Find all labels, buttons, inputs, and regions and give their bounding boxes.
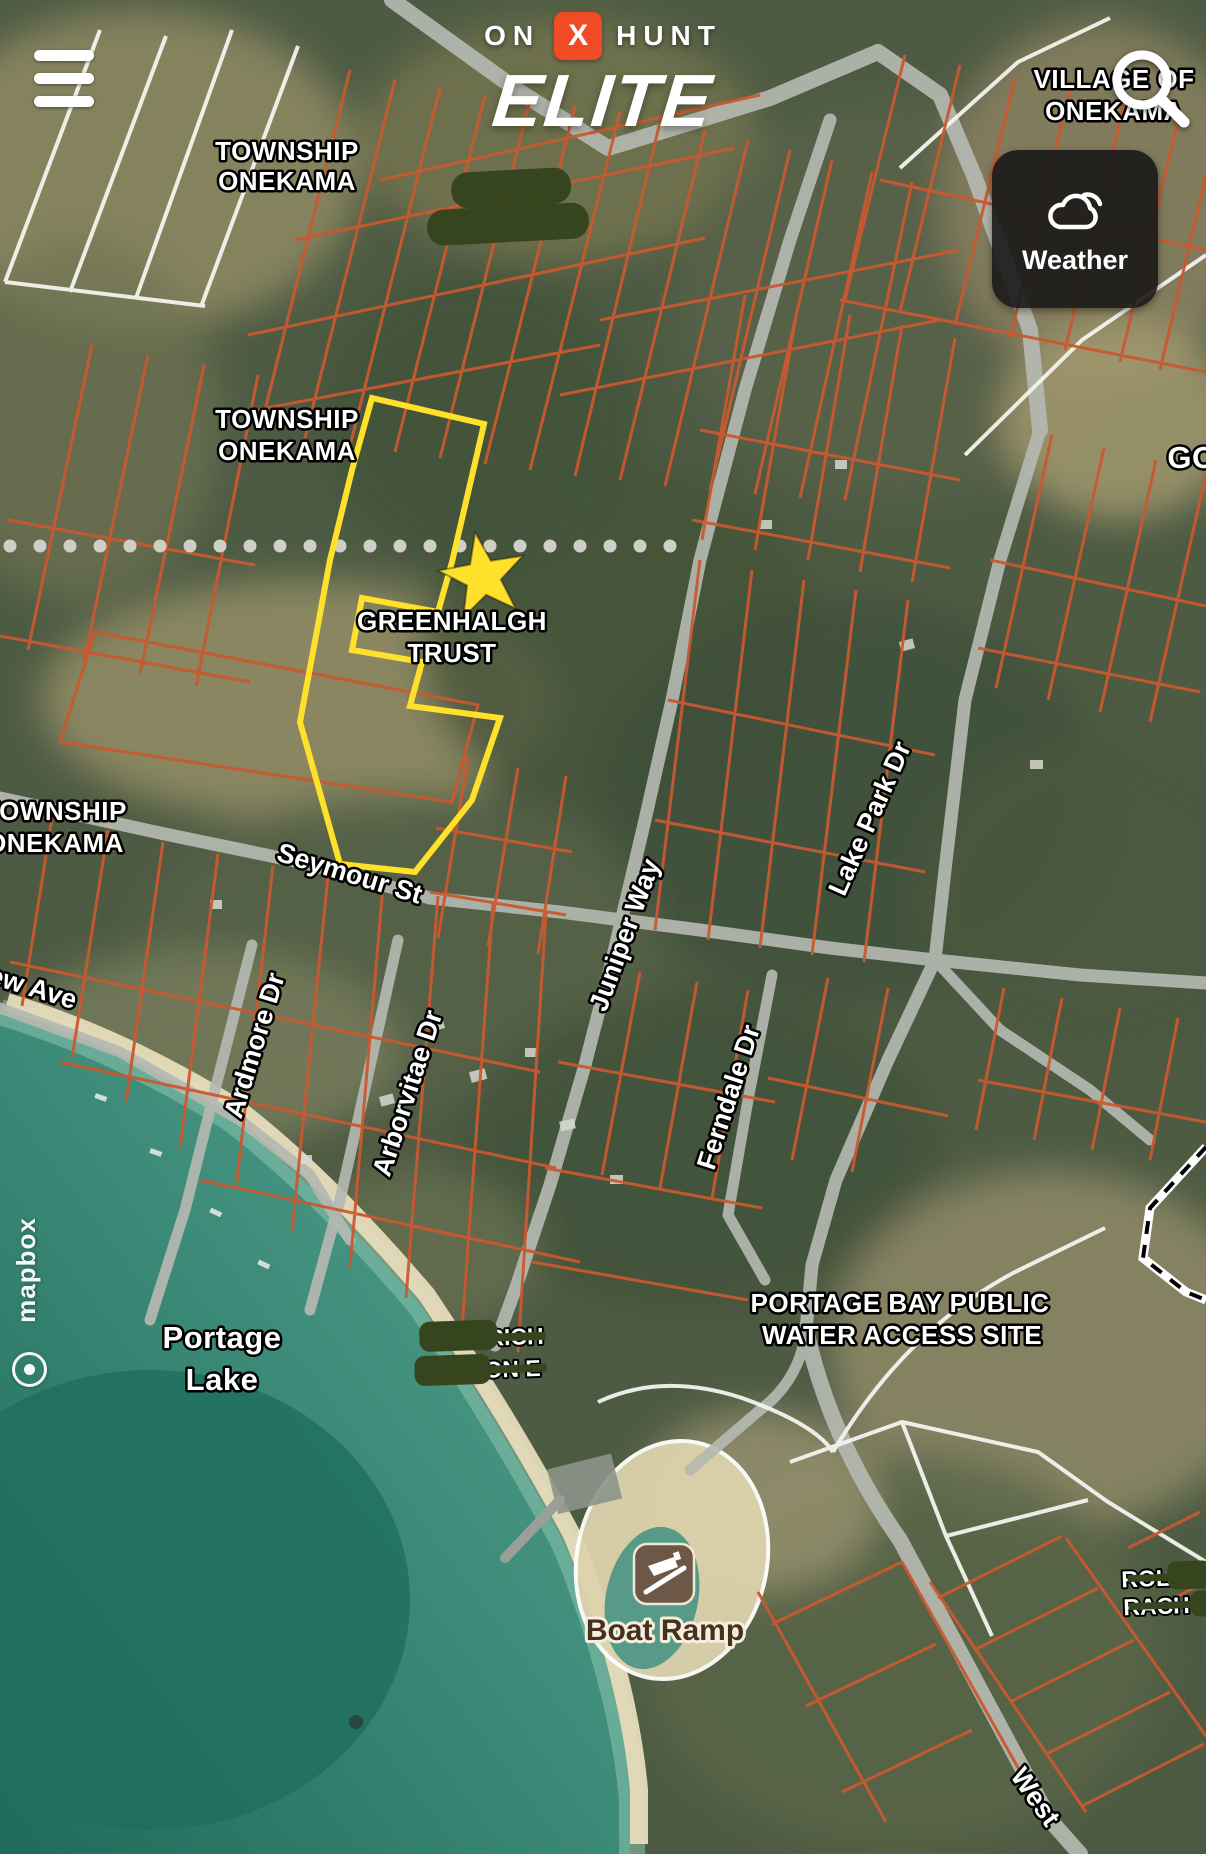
weather-button-label: Weather bbox=[1022, 245, 1128, 276]
township-label-mid-line1: TOWNSHIP bbox=[215, 404, 359, 434]
search-button[interactable] bbox=[1102, 42, 1198, 138]
water-access-label-line1: PORTAGE BAY PUBLIC bbox=[751, 1288, 1050, 1318]
water-access-label-line2: WATER ACCESS SITE bbox=[762, 1320, 1042, 1350]
onx-hunt-map-screen: RICH ON E ROL RACH TOWNSHIP ONEKAMA TOWN… bbox=[0, 0, 1206, 1854]
weather-button[interactable]: Weather bbox=[992, 150, 1158, 308]
boat-ramp-poi-icon[interactable] bbox=[634, 1544, 694, 1604]
menu-icon bbox=[34, 50, 94, 61]
mapbox-logo-icon[interactable] bbox=[12, 1352, 47, 1387]
lake-label-line1: Portage bbox=[163, 1320, 282, 1355]
redacted-owner-right: ROL RACH bbox=[1121, 1560, 1206, 1620]
township-label-left-line2: ONEKAMA bbox=[0, 828, 124, 858]
menu-button[interactable] bbox=[34, 50, 96, 116]
township-label-top-line2: ONEKAMA bbox=[218, 166, 356, 196]
menu-icon bbox=[34, 96, 94, 107]
parcel-owner-label-line1: GREENHALGH bbox=[357, 606, 547, 636]
boat-ramp-label: Boat Ramp bbox=[586, 1614, 744, 1647]
go-label-cutoff: GO bbox=[1167, 440, 1206, 475]
lake-dark-dot bbox=[349, 1715, 363, 1729]
cloud-icon bbox=[1040, 183, 1110, 237]
lake-label-line2: Lake bbox=[186, 1362, 259, 1397]
parcel-owner-label-line2: TRUST bbox=[407, 638, 496, 668]
menu-icon bbox=[34, 73, 94, 84]
township-label-left-line1: TOWNSHIP bbox=[0, 796, 127, 826]
township-label-mid-line2: ONEKAMA bbox=[218, 436, 356, 466]
township-label-top-line1: TOWNSHIP bbox=[215, 136, 359, 166]
mapbox-attribution[interactable]: mapbox bbox=[11, 1190, 41, 1350]
search-icon bbox=[1117, 55, 1184, 122]
